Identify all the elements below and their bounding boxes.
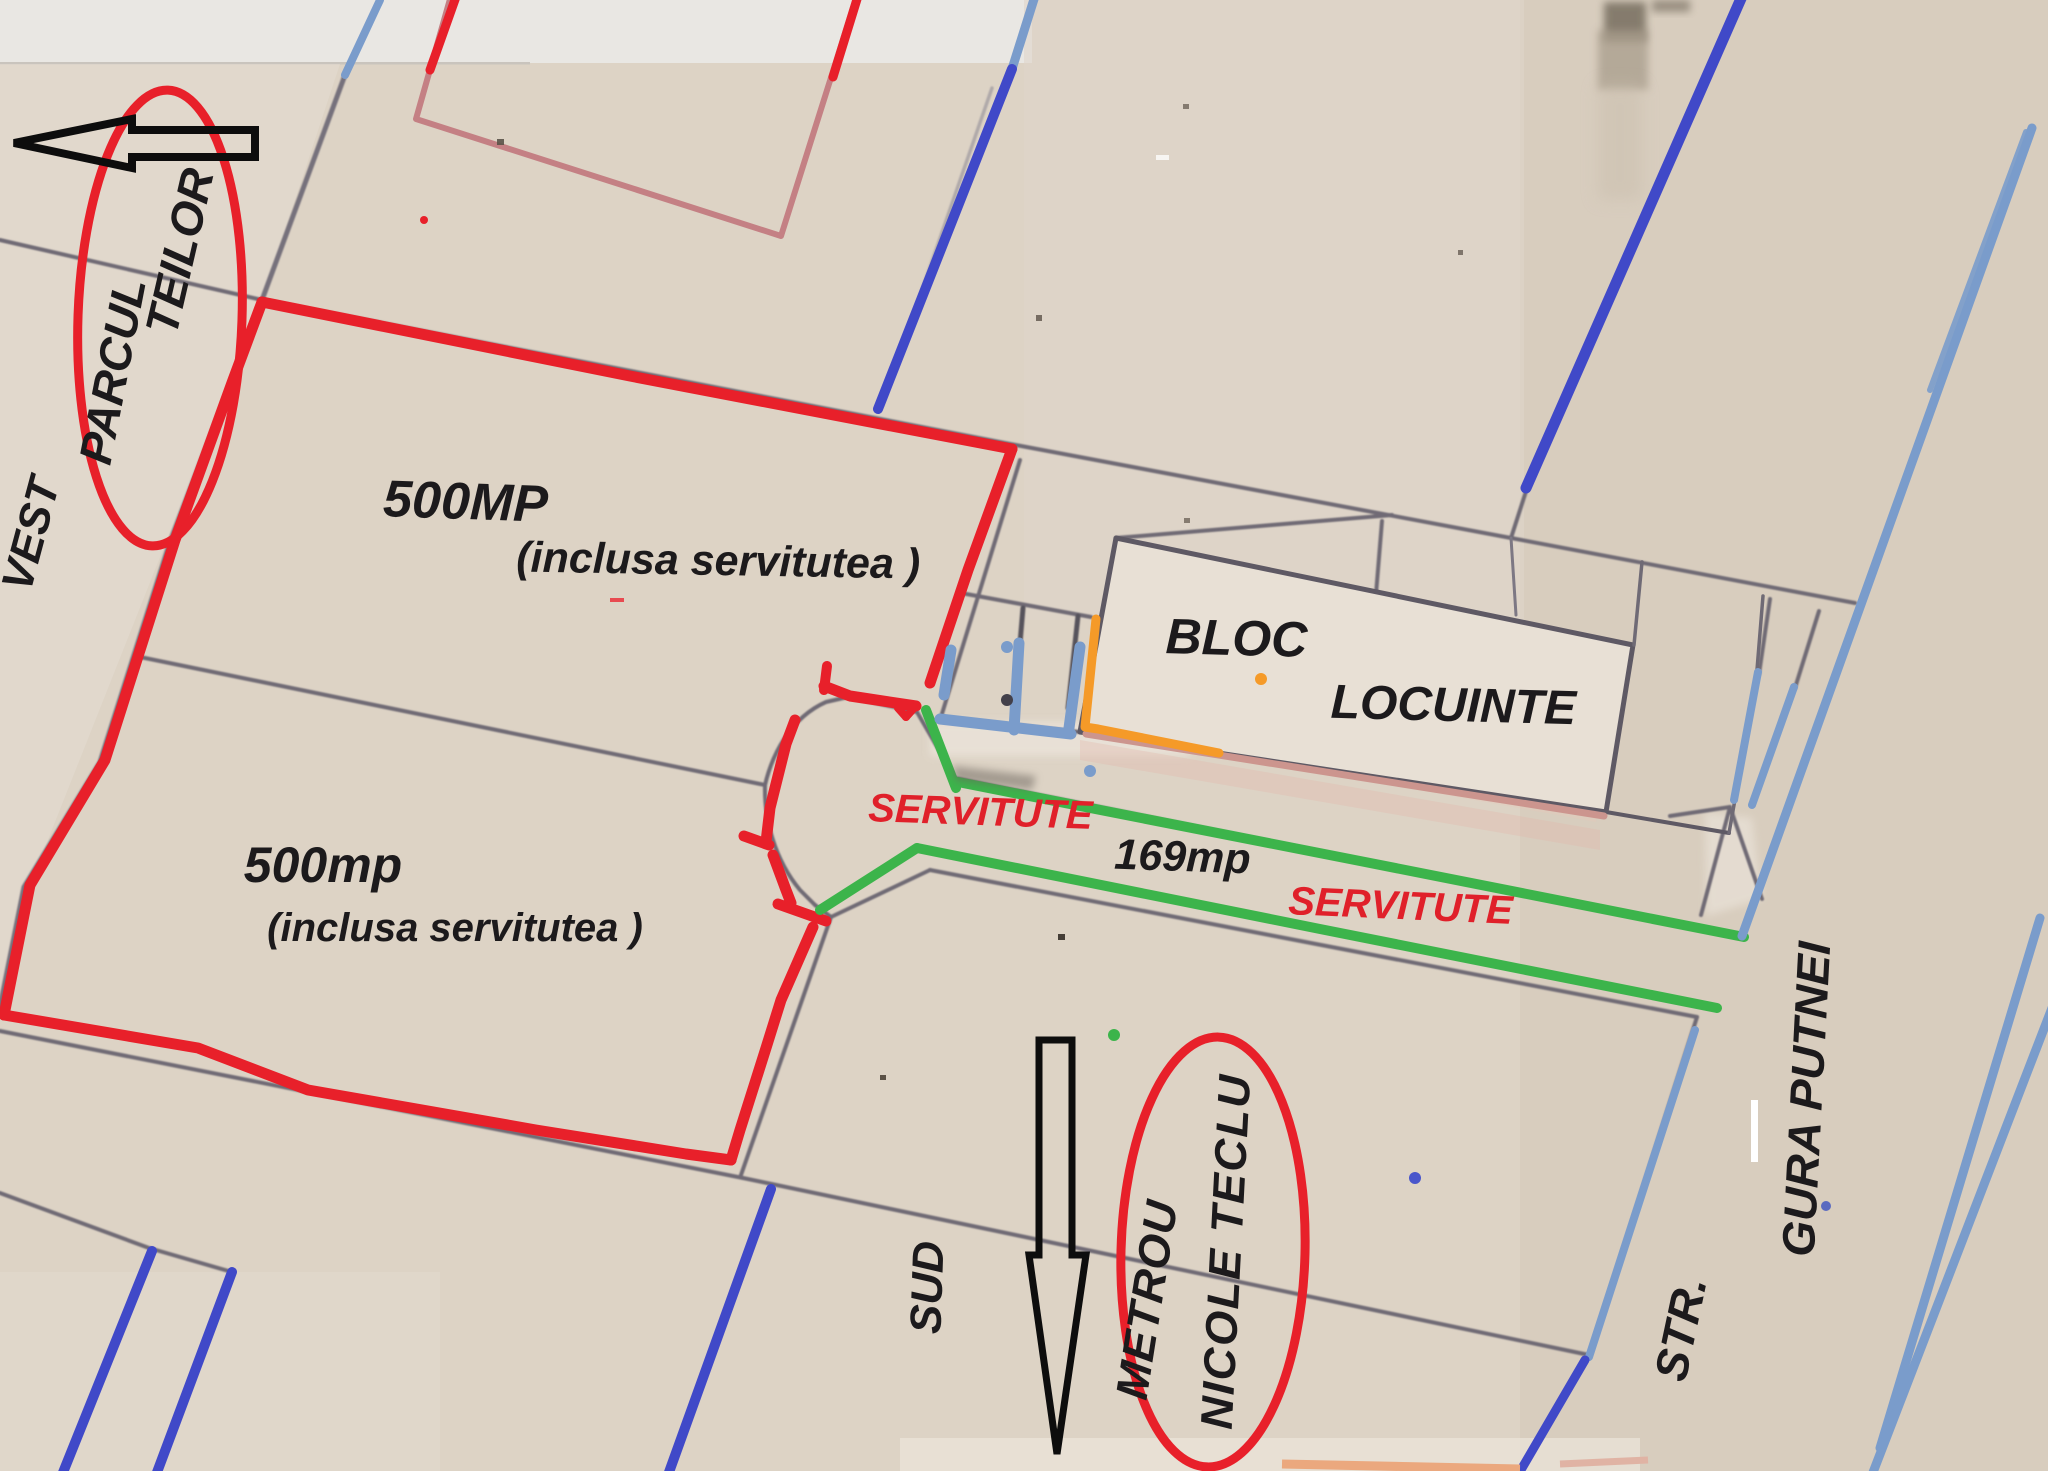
- svg-text:(inclusa servitutea ): (inclusa servitutea ): [516, 533, 921, 588]
- svg-text:SERVITUTE: SERVITUTE: [868, 786, 1095, 838]
- svg-text:BLOC: BLOC: [1165, 608, 1309, 668]
- svg-text:500MP: 500MP: [382, 470, 549, 534]
- svg-text:169mp: 169mp: [1114, 831, 1252, 884]
- svg-text:500mp: 500mp: [244, 837, 402, 893]
- svg-text:LOCUINTE: LOCUINTE: [1330, 676, 1579, 735]
- svg-text:(inclusa servitutea ): (inclusa servitutea ): [267, 906, 643, 950]
- svg-text:SUD: SUD: [901, 1240, 953, 1335]
